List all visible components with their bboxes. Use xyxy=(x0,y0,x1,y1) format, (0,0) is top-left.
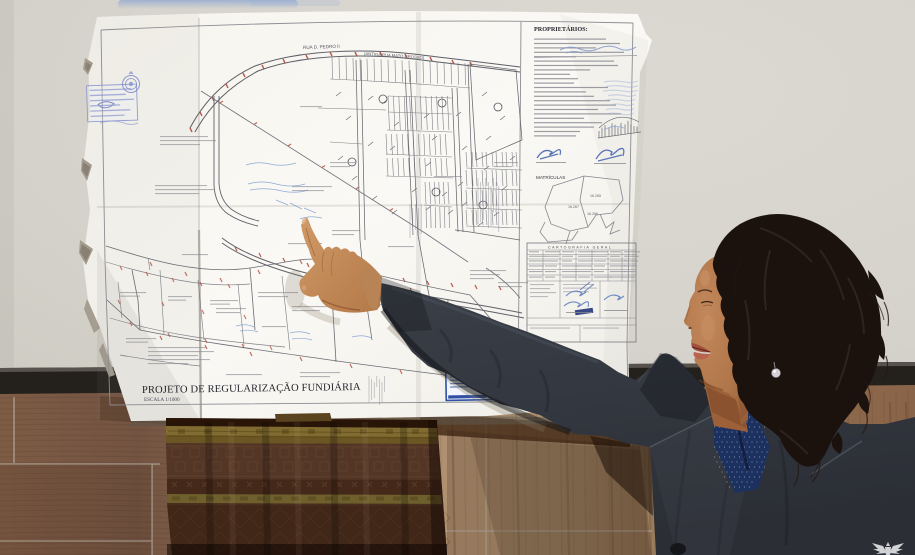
svg-text:16.266: 16.266 xyxy=(587,212,598,216)
svg-text:16.267: 16.267 xyxy=(568,205,579,209)
svg-text:ESCALA 1/1000: ESCALA 1/1000 xyxy=(144,397,180,403)
svg-text:CARTOGRAFIA GERAL: CARTOGRAFIA GERAL xyxy=(548,246,612,250)
svg-text:MATRÍCULAS: MATRÍCULAS xyxy=(536,174,565,180)
svg-text:16.265: 16.265 xyxy=(590,194,601,198)
svg-text:PROPRIETÁRIOS:: PROPRIETÁRIOS: xyxy=(534,25,588,33)
